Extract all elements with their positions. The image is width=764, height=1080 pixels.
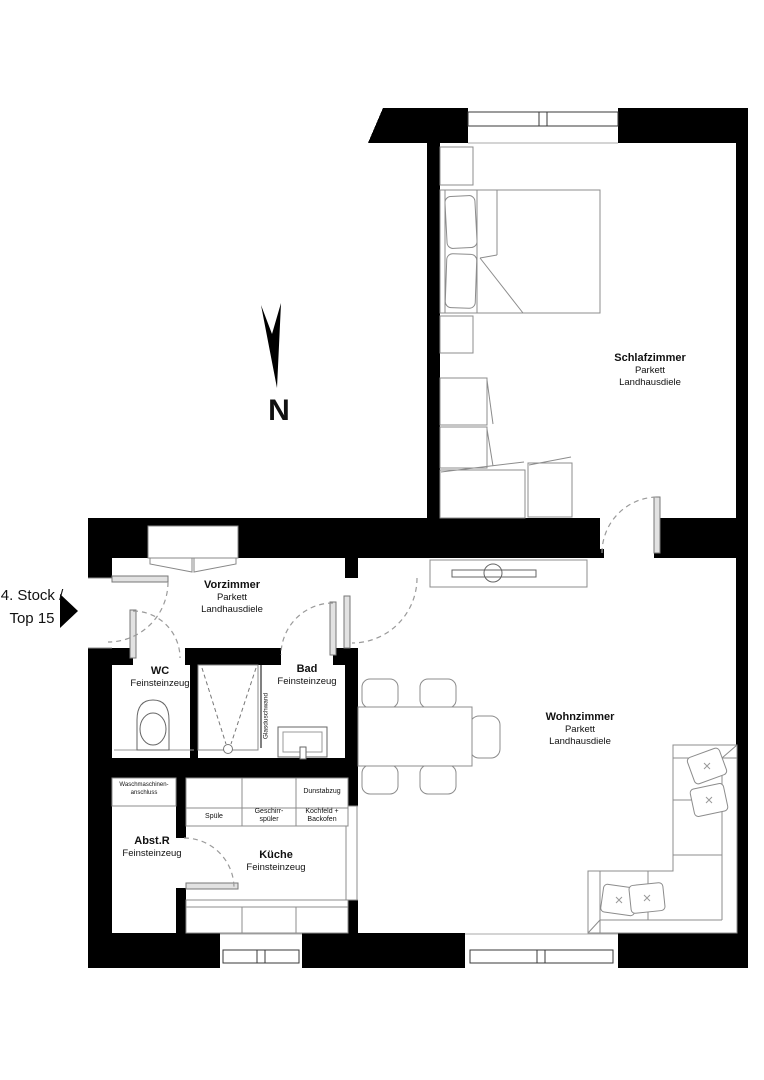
- window-bedroom: [468, 112, 618, 143]
- window-livingroom: [465, 934, 618, 963]
- sideboard-tv: [430, 560, 587, 587]
- sink-label: Spüle: [205, 813, 223, 821]
- extractor-label: Dunstabzug: [303, 788, 340, 796]
- chair: [362, 765, 398, 794]
- chair: [362, 679, 398, 708]
- chair: [420, 765, 456, 794]
- window-kitchen: [220, 934, 302, 963]
- bedroom-furniture: [440, 147, 600, 518]
- wardrobe: [440, 378, 572, 518]
- nightstand: [440, 316, 473, 353]
- abstr-label: Abst.R Feinsteinzeug: [122, 835, 181, 860]
- north-arrow-icon: [261, 303, 281, 388]
- wc-door-leaf: [130, 610, 136, 658]
- kitchen-counter-bottom: [186, 900, 348, 933]
- floorplan-canvas: 4. Stock / Top 15 N Schlafzimmer Parkett…: [0, 0, 764, 1080]
- bedroom-door-swing: [602, 497, 658, 553]
- chair: [470, 716, 500, 758]
- storage-door-swing: [184, 838, 234, 888]
- entry-door-leaf: [112, 576, 168, 582]
- bad-door-swing: [281, 603, 333, 655]
- dining-table: [358, 707, 472, 766]
- bad-door-leaf: [330, 602, 336, 655]
- wohnzimmer-label: Wohnzimmer Parkett Landhausdiele: [546, 711, 615, 748]
- storage-door-leaf: [186, 883, 238, 889]
- bad-label: Bad Feinsteinzeug: [277, 663, 336, 688]
- wc-label: WC Feinsteinzeug: [130, 665, 189, 690]
- schlafzimmer-label: Schlafzimmer Parkett Landhausdiele: [614, 352, 686, 389]
- hall-wardrobe: [148, 526, 238, 572]
- kueche-label: Küche Feinsteinzeug: [246, 849, 305, 874]
- floorplan-drawing: [0, 0, 764, 1080]
- double-bed: [440, 190, 600, 313]
- shower-drain: [224, 745, 233, 754]
- wc-fixtures: [114, 700, 194, 750]
- cooktop-label: Kochfeld + Backofen: [305, 808, 338, 825]
- nightstand: [440, 147, 473, 185]
- passage-door-leaf: [344, 596, 350, 648]
- bathroom-sink: [278, 727, 327, 759]
- pillow: [445, 195, 478, 248]
- toilet-seat: [140, 713, 166, 745]
- floor-label: 4. Stock / Top 15: [1, 584, 64, 631]
- corner-sofa: [588, 745, 737, 933]
- entry-door-swing: [108, 582, 168, 642]
- bedroom-door-leaf: [654, 497, 660, 553]
- dishwasher-label: Geschirr- spüler: [255, 808, 284, 825]
- north-label: N: [268, 393, 290, 430]
- passage-door-swing: [352, 578, 417, 643]
- shower-glass-label: Glasduschwand: [263, 693, 270, 739]
- vorzimmer-label: Vorzimmer Parkett Landhausdiele: [201, 579, 263, 616]
- dining-set: [358, 679, 500, 794]
- washing-machine-label: Waschmaschinen- anschluss: [119, 782, 168, 797]
- chair: [420, 679, 456, 708]
- shower: [198, 665, 258, 750]
- pillow: [445, 253, 477, 308]
